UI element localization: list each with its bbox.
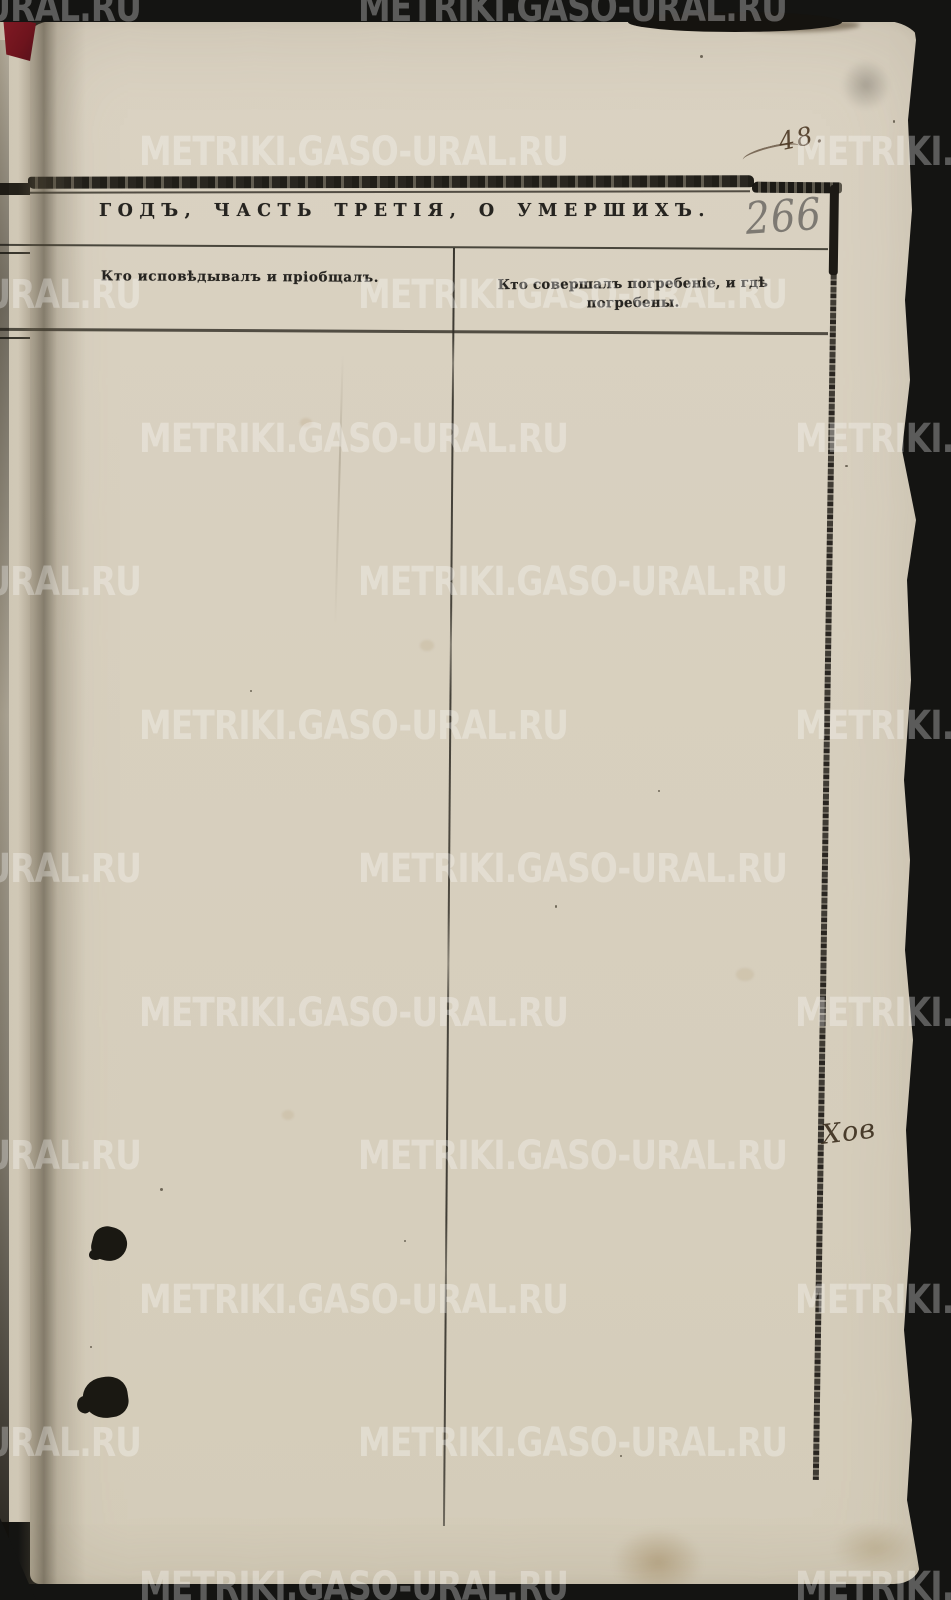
- column-header-burial: Кто совершалъ погребеніе, и гдѣ погребен…: [463, 274, 803, 315]
- foxing-spot: [736, 968, 754, 981]
- paper-speck: [160, 1188, 163, 1191]
- foxing-spot: [420, 640, 434, 651]
- ink-blot: [89, 1249, 102, 1260]
- paper-speck: [555, 905, 557, 908]
- table-right-border-top: [829, 185, 839, 275]
- table-top-border: [28, 175, 754, 189]
- paper-speck: [90, 1346, 92, 1348]
- background-bottom-band: [0, 1584, 951, 1600]
- column-header-confession: Кто исповѣдывалъ и пріобщалъ.: [40, 267, 440, 288]
- paper-speck: [893, 120, 895, 123]
- foxing-spot: [282, 1110, 294, 1120]
- scanned-book-photo: { "document": { "kind": "metric-book-pag…: [0, 0, 951, 1600]
- paper-speck: [700, 55, 703, 58]
- foxing-spot: [300, 418, 312, 427]
- paper-speck: [404, 1240, 406, 1242]
- left-edge-shadow: [0, 40, 9, 1540]
- background-top-edge-bump: [628, 12, 842, 32]
- paper-speck: [658, 790, 660, 792]
- book-page-paper: [30, 20, 920, 1584]
- paper-speck: [620, 1455, 622, 1457]
- paper-speck: [250, 690, 252, 692]
- paper-speck: [845, 465, 848, 467]
- page-number-pencil: 266: [744, 195, 823, 240]
- margin-note-ink: Хов: [820, 1113, 878, 1150]
- table-title: ГОДЪ, ЧАСТЬ ТРЕТІЯ, О УМЕРШИХЪ.: [50, 198, 760, 224]
